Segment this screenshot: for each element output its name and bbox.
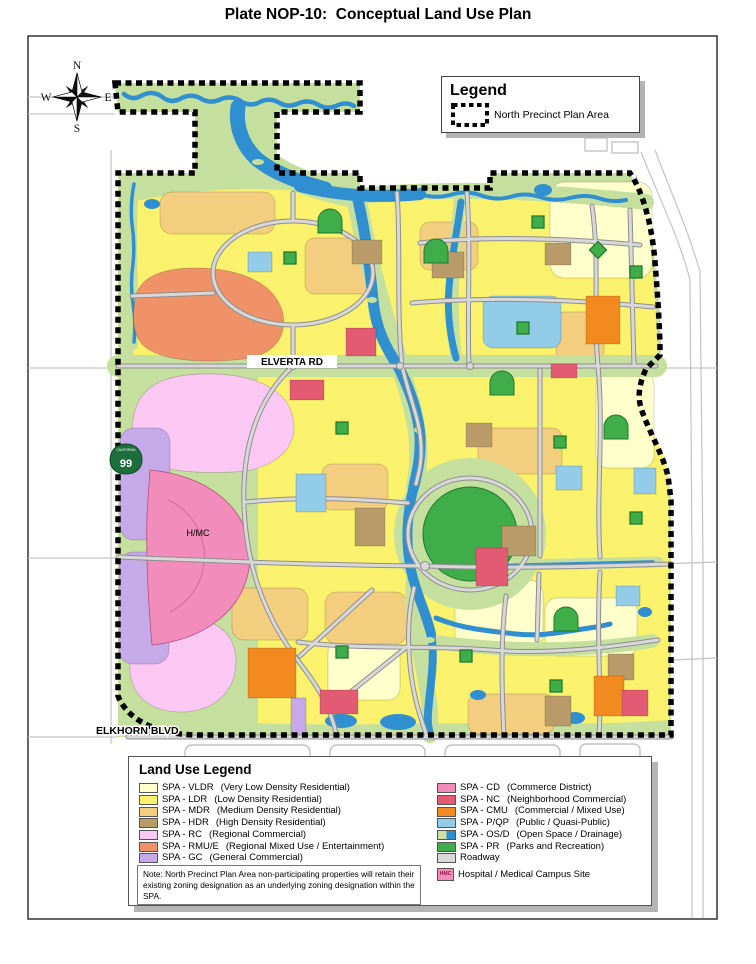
legend-item-desc: (Parks and Recreation) [506, 842, 604, 852]
legend-item-desc: (Commerce District) [507, 783, 591, 793]
legend-item-desc: (Public / Quasi-Public) [516, 818, 610, 828]
legend-item-code: Hospital / Medical Campus Site [458, 870, 590, 880]
elkhorn-blvd-label: ELKHORN BLVD [96, 725, 179, 737]
legend-swatch-ldr [139, 795, 158, 805]
compass-north: N [73, 60, 82, 72]
legend-item-hdr: SPA - HDR(High Density Residential) [139, 818, 431, 828]
legend-swatch-gc [139, 853, 158, 863]
legend-item-code: SPA - MDR [162, 806, 210, 816]
legend-item-desc: (Neighborhood Commercial) [507, 795, 626, 805]
legend-item-code: SPA - OS/D [460, 830, 509, 840]
legend-swatch-mdr [139, 807, 158, 817]
plan-boundary-icon [450, 102, 490, 128]
compass-west: W [41, 92, 52, 104]
legend-item-ldr: SPA - LDR(Low Density Residential) [139, 795, 431, 805]
elverta-rd-label: ELVERTA RD [261, 357, 323, 368]
plan-boundary-label: North Precinct Plan Area [494, 109, 609, 121]
legend-swatch-cmu [437, 807, 456, 817]
compass-east: E [104, 92, 111, 104]
legend-item-p-qp: SPA - P/QP(Public / Quasi-Public) [437, 818, 647, 828]
legend-swatch-p-qp [437, 818, 456, 828]
highway-number: 99 [120, 458, 132, 470]
legend-item-os-d: SPA - OS/D(Open Space / Drainage) [437, 830, 647, 840]
legend-swatch-pr [437, 842, 456, 852]
gc-parcel-small [291, 698, 306, 735]
legend-item-code: SPA - VLDR [162, 783, 214, 793]
legend-swatch-hospital-medical-campus-site: HMC [437, 868, 454, 881]
legend-item-rc: SPA - RC(Regional Commercial) [139, 830, 431, 840]
legend-item-code: SPA - HDR [162, 818, 209, 828]
land-use-legend-right-column: SPA - CD(Commerce District)SPA - NC(Neig… [437, 783, 647, 883]
legend-item-code: SPA - RMU/E [162, 842, 219, 852]
legend-item-roadway: Roadway [437, 853, 647, 863]
legend-item-desc: (High Density Residential) [216, 818, 326, 828]
legend-item-cmu: SPA - CMU(Commercial / Mixed Use) [437, 806, 647, 816]
legend-item-gc: SPA - GC(General Commercial) [139, 853, 431, 863]
compass-south: S [74, 123, 80, 135]
legend-item-code: SPA - CD [460, 783, 500, 793]
legend-item-code: SPA - NC [460, 795, 500, 805]
legend-item-rmu-e: SPA - RMU/E(Regional Mixed Use / Enterta… [139, 842, 431, 852]
legend-item-code: SPA - P/QP [460, 818, 509, 828]
land-use-legend-title: Land Use Legend [139, 762, 252, 777]
legend-swatch-hdr [139, 818, 158, 828]
legend-item-cd: SPA - CD(Commerce District) [437, 783, 647, 793]
legend-swatch-cd [437, 783, 456, 793]
legend-item-desc: (Medium Density Residential) [217, 806, 341, 816]
land-use-legend-left-column: SPA - VLDR(Very Low Density Residential)… [139, 783, 431, 865]
hmc-label: H/MC [187, 528, 210, 538]
legend-item-code: SPA - CMU [460, 806, 508, 816]
legend-swatch-roadway [437, 853, 456, 863]
legend-swatch-nc [437, 795, 456, 805]
highway-99-shield: CALIFORNIA 99 [110, 444, 142, 474]
legend-item-desc: (Low Density Residential) [214, 795, 322, 805]
legend-item-code: SPA - PR [460, 842, 499, 852]
legend-swatch-vldr [139, 783, 158, 793]
highway-state-label: CALIFORNIA [116, 448, 136, 452]
legend-item-code: SPA - LDR [162, 795, 207, 805]
legend-item-desc: (Regional Mixed Use / Entertainment) [226, 842, 384, 852]
legend-item-desc: (Very Low Density Residential) [221, 783, 350, 793]
legend-swatch-os-d [437, 830, 456, 840]
legend-swatch-rc [139, 830, 158, 840]
legend-item-desc: (General Commercial) [209, 853, 302, 863]
legend-item-code: SPA - RC [162, 830, 202, 840]
legend-item-pr: SPA - PR(Parks and Recreation) [437, 842, 647, 852]
land-use-legend-box: Land Use Legend SPA - VLDR(Very Low Dens… [128, 756, 652, 906]
map-legend-box: Legend North Precinct Plan Area [441, 76, 640, 133]
legend-item-code: Roadway [460, 853, 500, 863]
legend-item-hospital-medical-campus-site: HMCHospital / Medical Campus Site [437, 868, 647, 881]
legend-swatch-rmu-e [139, 842, 158, 852]
land-use-legend-note: Note: North Precinct Plan Area non-parti… [137, 865, 421, 905]
legend-item-vldr: SPA - VLDR(Very Low Density Residential) [139, 783, 431, 793]
legend-item-desc: (Commercial / Mixed Use) [515, 806, 625, 816]
legend-item-nc: SPA - NC(Neighborhood Commercial) [437, 795, 647, 805]
legend-item-mdr: SPA - MDR(Medium Density Residential) [139, 806, 431, 816]
map-legend-title: Legend [450, 82, 631, 100]
legend-item-desc: (Regional Commercial) [209, 830, 306, 840]
legend-item-desc: (Open Space / Drainage) [516, 830, 622, 840]
legend-item-code: SPA - GC [162, 853, 202, 863]
